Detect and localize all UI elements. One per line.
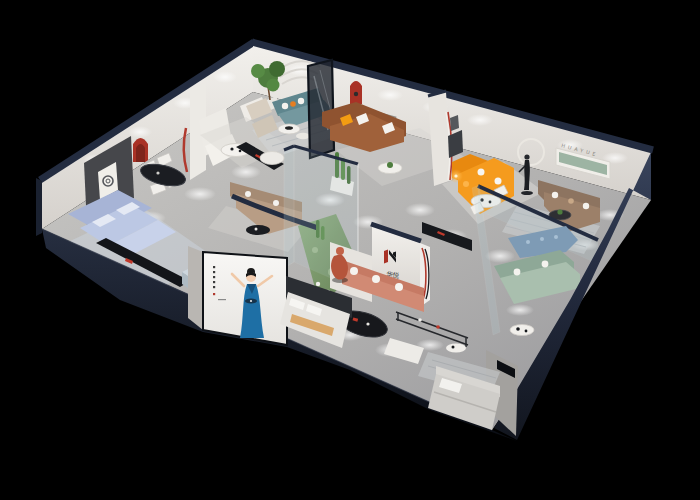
round-side-table bbox=[296, 133, 310, 139]
logo-red-bar bbox=[384, 250, 388, 264]
table-decor bbox=[156, 171, 159, 174]
white-pillow bbox=[478, 169, 485, 176]
white-pillow bbox=[298, 98, 304, 104]
belt-buckle bbox=[250, 300, 252, 302]
tan-pillow bbox=[568, 198, 574, 204]
white-side-table bbox=[446, 344, 466, 353]
red-arch-niche-shadow bbox=[136, 144, 145, 162]
facade-gray-pier bbox=[188, 246, 203, 330]
table-decor bbox=[525, 330, 528, 333]
shelf-decor-red bbox=[436, 325, 440, 329]
statue-body bbox=[524, 160, 530, 190]
glass-pane bbox=[284, 146, 294, 268]
statue-base bbox=[521, 191, 533, 195]
table-decor bbox=[255, 228, 258, 231]
orange-pillow bbox=[290, 101, 296, 107]
glass-door-panel bbox=[308, 60, 334, 158]
showroom-render: HUAYUE bbox=[0, 0, 700, 500]
left-exterior-edge bbox=[36, 178, 42, 236]
wall-washer-light bbox=[377, 89, 403, 101]
table-plant bbox=[557, 209, 562, 214]
white-table-decor bbox=[366, 322, 369, 325]
white-pillow bbox=[583, 203, 589, 209]
lamp-bulb bbox=[454, 174, 457, 177]
white-pillow bbox=[282, 103, 288, 109]
shelf-decor bbox=[418, 318, 422, 322]
white-round-table bbox=[510, 325, 534, 336]
wall-washer-light bbox=[467, 114, 493, 126]
wall-washer-light bbox=[128, 126, 152, 138]
table-vase bbox=[239, 150, 242, 153]
poster-red-seal bbox=[213, 293, 215, 295]
orange-cushion bbox=[463, 181, 469, 187]
table-tray bbox=[285, 126, 293, 130]
white-pillow bbox=[514, 269, 521, 276]
mini-figure bbox=[316, 282, 320, 286]
table-vase bbox=[230, 147, 233, 150]
niche-figurine bbox=[354, 92, 358, 96]
white-pillow bbox=[495, 178, 502, 185]
black-coffee-table bbox=[246, 225, 270, 235]
white-pillow bbox=[273, 200, 279, 206]
table-decor bbox=[516, 327, 520, 331]
white-cushion bbox=[372, 275, 380, 283]
white-curved-lounge bbox=[260, 152, 284, 165]
hostess-poster-screen bbox=[203, 252, 287, 345]
statue-head bbox=[524, 154, 529, 159]
white-pillow bbox=[552, 192, 558, 198]
white-cushion bbox=[395, 283, 403, 291]
white-pillow bbox=[245, 191, 251, 197]
wall-washer-light bbox=[213, 71, 237, 83]
table-plant bbox=[387, 162, 393, 168]
white-cushion bbox=[350, 267, 358, 275]
isometric-floorplan-scene: HUAYUE bbox=[0, 0, 700, 500]
table-decor bbox=[452, 346, 455, 349]
white-pillow bbox=[542, 261, 549, 268]
figure-head bbox=[336, 247, 344, 255]
